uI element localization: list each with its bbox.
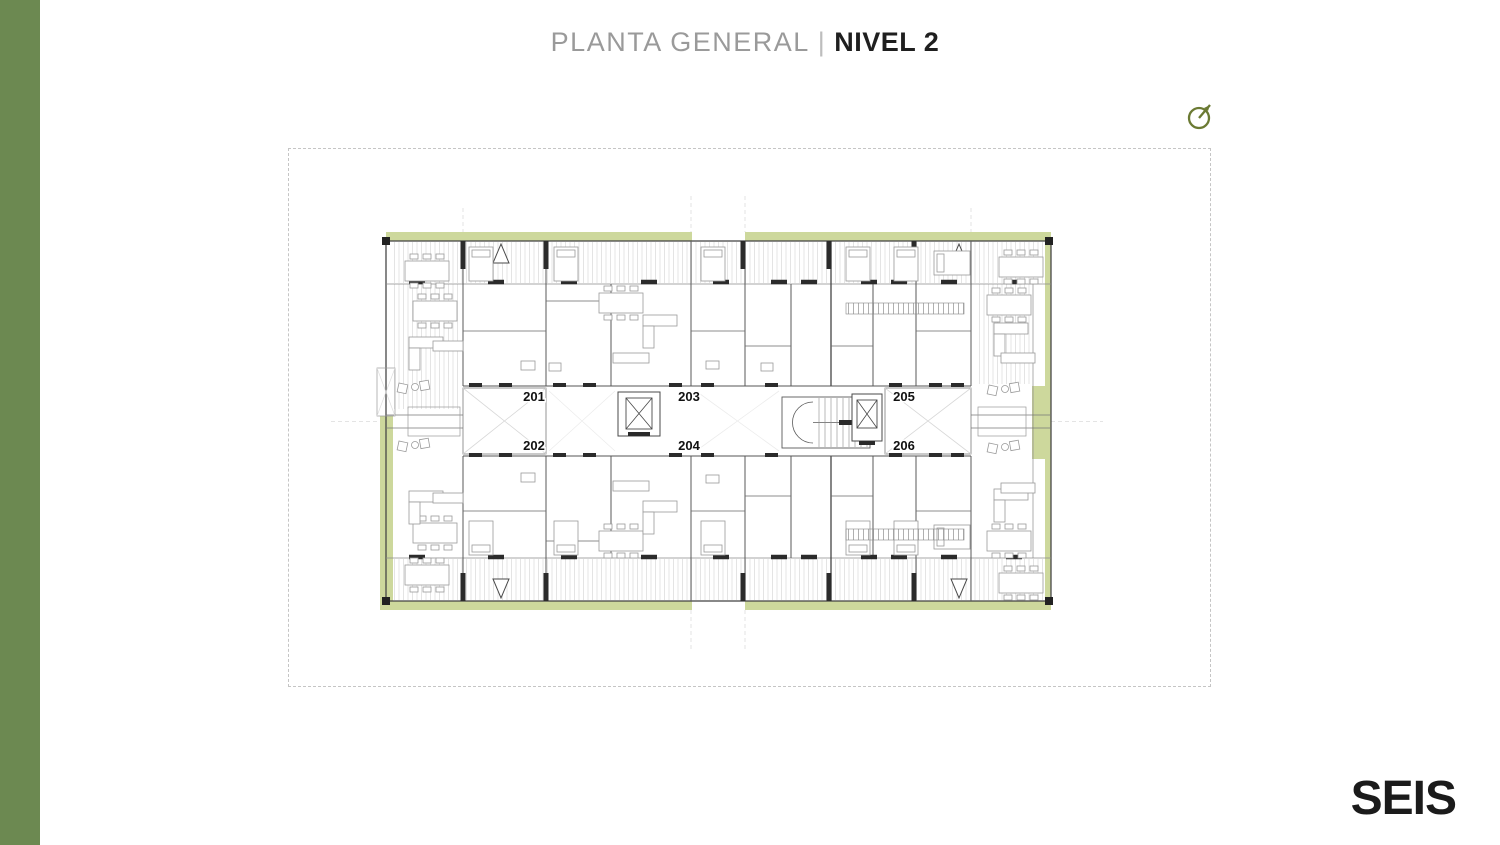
page-title: PLANTA GENERAL|NIVEL 2 (40, 27, 1450, 58)
unit-number-label: 201 (523, 389, 545, 404)
elevator-core-a (618, 392, 660, 436)
entry-bridges (377, 368, 1051, 436)
north-indicator-icon (1185, 100, 1217, 132)
furniture (397, 247, 1043, 600)
floor-plan: 201 202 203 204 205 206 (289, 149, 1212, 688)
title-light: PLANTA GENERAL (551, 27, 810, 57)
title-separator: | (818, 27, 827, 57)
unit-number-label: 206 (893, 438, 915, 453)
unit-number-label: 203 (678, 389, 700, 404)
title-bold: NIVEL 2 (834, 27, 939, 57)
elevator-core-b (852, 394, 882, 445)
green-accent-bar (0, 0, 40, 845)
unit-number-label: 205 (893, 389, 915, 404)
seis-logo: SEIS (1351, 771, 1456, 826)
floor-plan-frame: 201 202 203 204 205 206 (288, 148, 1211, 687)
unit-number-label: 202 (523, 438, 545, 453)
unit-number-label: 204 (678, 438, 700, 453)
